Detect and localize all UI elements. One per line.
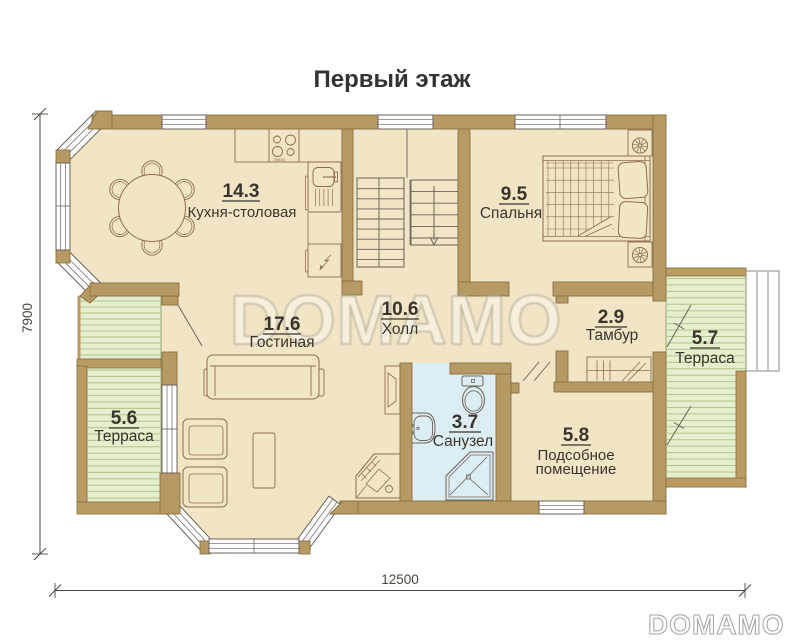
svg-text:17.6: 17.6 [264, 314, 301, 335]
svg-text:7900: 7900 [20, 303, 35, 333]
svg-text:5.7: 5.7 [692, 328, 718, 349]
svg-text:Санузел: Санузел [433, 433, 493, 450]
svg-text:5.6: 5.6 [111, 408, 137, 429]
svg-text:DOMAMO: DOMAMO [648, 609, 785, 640]
svg-text:10.6: 10.6 [382, 299, 419, 320]
svg-text:5.8: 5.8 [563, 425, 589, 446]
svg-text:3.7: 3.7 [452, 412, 478, 433]
svg-text:помещение: помещение [536, 461, 617, 478]
svg-text:Первый этаж: Первый этаж [314, 66, 472, 93]
svg-text:Тамбур: Тамбур [586, 327, 639, 344]
svg-text:12500: 12500 [381, 572, 419, 587]
svg-text:Терраса: Терраса [675, 350, 735, 367]
svg-text:плита: плита [273, 157, 285, 162]
svg-text:14.3: 14.3 [223, 181, 260, 202]
svg-text:Терраса: Терраса [94, 428, 154, 445]
svg-text:2.9: 2.9 [598, 307, 624, 328]
svg-text:9.5: 9.5 [501, 184, 528, 205]
svg-text:Спальня: Спальня [480, 205, 542, 222]
svg-text:Кухня-столовая: Кухня-столовая [188, 204, 297, 221]
svg-text:Холл: Холл [382, 321, 419, 338]
svg-text:Гостиная: Гостиная [249, 334, 314, 351]
